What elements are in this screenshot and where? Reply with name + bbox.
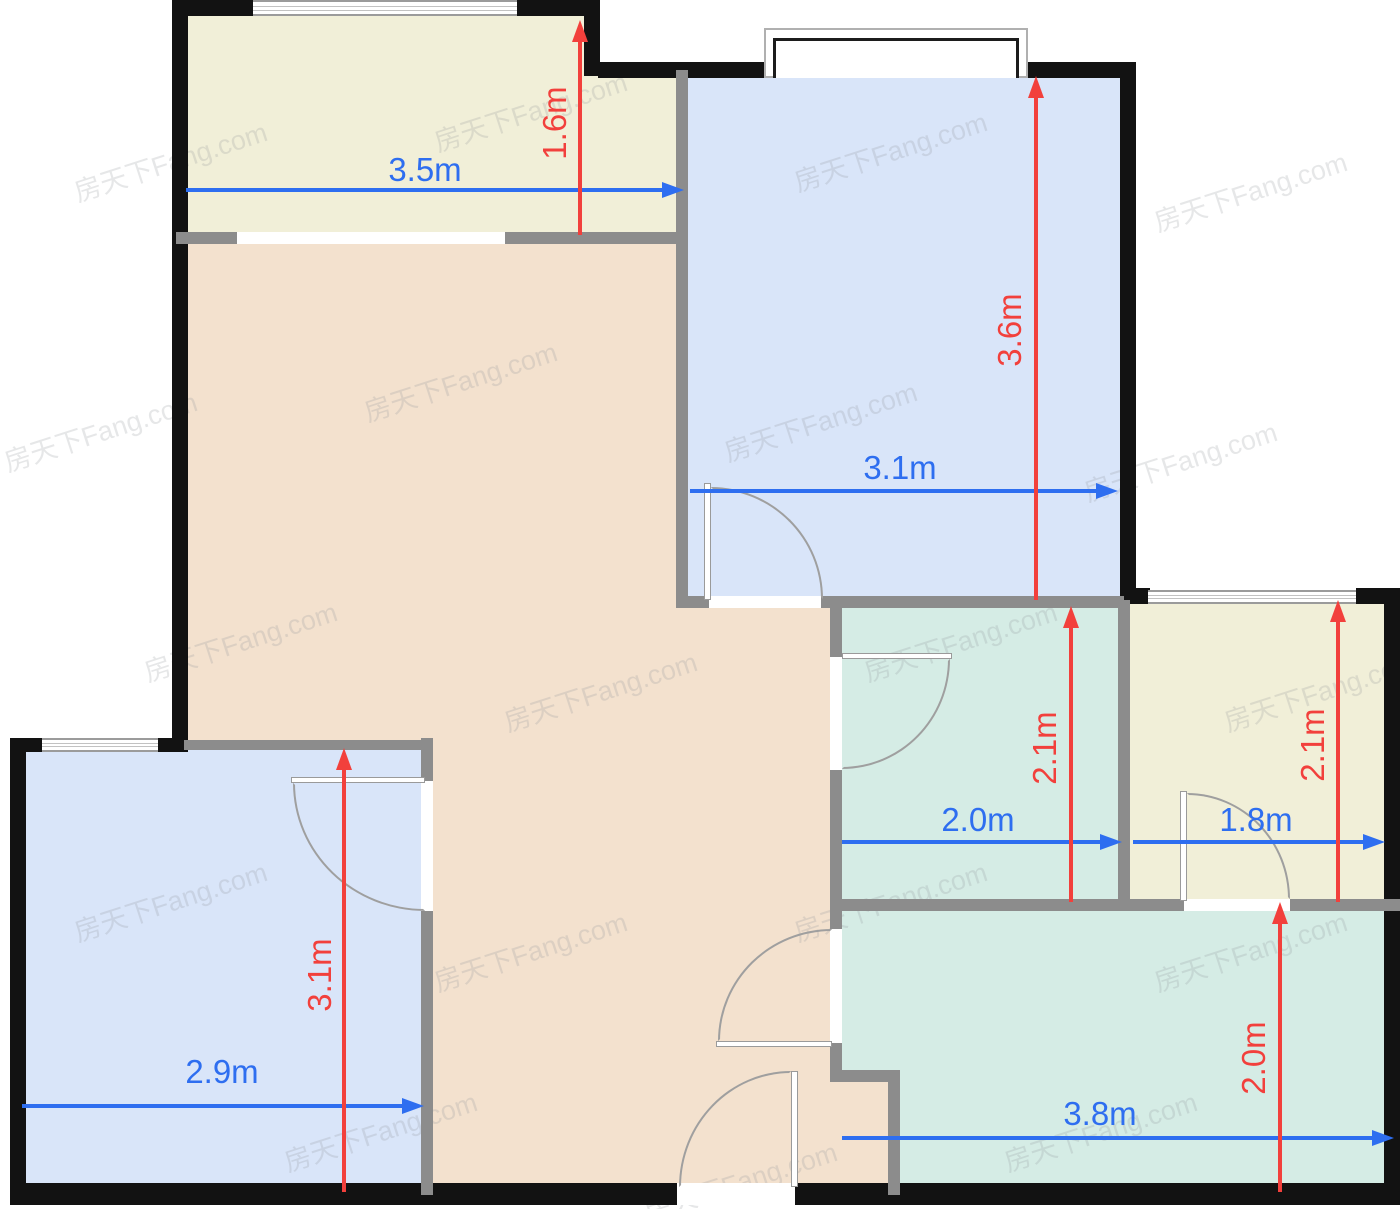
dim-label-bedroom-bottom-depth: 3.1m <box>301 938 339 1011</box>
wall-segment <box>505 232 684 244</box>
dim-label-kitchen-depth: 2.0m <box>1235 1021 1273 1094</box>
wall-segment <box>10 738 42 752</box>
dim-label-kitchen-width: 3.8m <box>1063 1095 1136 1133</box>
dim-label-right-room-depth: 2.1m <box>1294 708 1332 781</box>
watermark: 房天下Fang.com <box>1148 140 1351 239</box>
room-kitchen-bottom-right <box>838 905 1390 1195</box>
window <box>253 0 517 16</box>
dim-arrow-bath-width <box>842 840 1102 844</box>
window <box>42 738 158 752</box>
dim-arrow-bedroom-bottom-depth <box>342 768 346 1192</box>
dim-arrow-bedroom-bottom-width <box>22 1104 404 1108</box>
dim-label-right-room-width: 1.8m <box>1219 801 1292 839</box>
door-leaf <box>704 483 711 600</box>
wall-segment <box>1120 62 1136 602</box>
dim-arrow-right-room-depth <box>1336 620 1340 902</box>
door-leaf <box>842 653 952 659</box>
dim-label-bath-depth: 2.1m <box>1026 711 1064 784</box>
wall-segment <box>830 602 842 657</box>
dim-label-bedroom-top-width: 3.1m <box>863 449 936 487</box>
wall-segment <box>795 1183 1400 1205</box>
door-opening <box>830 657 842 770</box>
wall-segment <box>1290 899 1400 911</box>
wall-segment <box>676 70 688 608</box>
dim-label-bedroom-top-depth: 3.6m <box>991 293 1029 366</box>
door-leaf <box>1180 791 1187 901</box>
wall-segment <box>421 911 433 1195</box>
wall-segment <box>1118 600 1130 911</box>
floor-plan: 房天下Fang.com 房天下Fang.com 房天下Fang.com 房天下F… <box>0 0 1400 1209</box>
wall-segment <box>888 1070 900 1195</box>
door-leaf <box>291 777 425 783</box>
dim-arrow-kitchen-width <box>842 1136 1374 1140</box>
wall-segment <box>172 0 188 750</box>
wall-segment <box>1384 588 1400 1205</box>
wall-segment <box>421 738 433 781</box>
window <box>1148 590 1356 604</box>
dim-label-balcony-width: 3.5m <box>388 151 461 189</box>
room-balcony <box>184 14 682 240</box>
wall-segment <box>184 740 429 750</box>
dim-label-bath-width: 2.0m <box>941 801 1014 839</box>
dim-arrow-bedroom-top-depth <box>1034 96 1038 600</box>
dim-label-bedroom-bottom-width: 2.9m <box>185 1053 258 1091</box>
balcony-door-opening <box>237 232 505 244</box>
dim-arrow-bath-depth <box>1069 626 1073 902</box>
dim-arrow-right-room-width <box>1133 840 1365 844</box>
wall-segment <box>10 738 26 1205</box>
bay-window <box>773 38 1019 78</box>
door-leaf <box>791 1071 798 1187</box>
wall-segment <box>830 899 1184 911</box>
dim-label-balcony-depth: 1.6m <box>536 86 574 159</box>
dim-arrow-kitchen-depth <box>1278 922 1282 1192</box>
door-leaf <box>716 1041 832 1047</box>
dim-arrow-balcony-depth <box>578 40 582 235</box>
wall-segment <box>176 232 237 244</box>
